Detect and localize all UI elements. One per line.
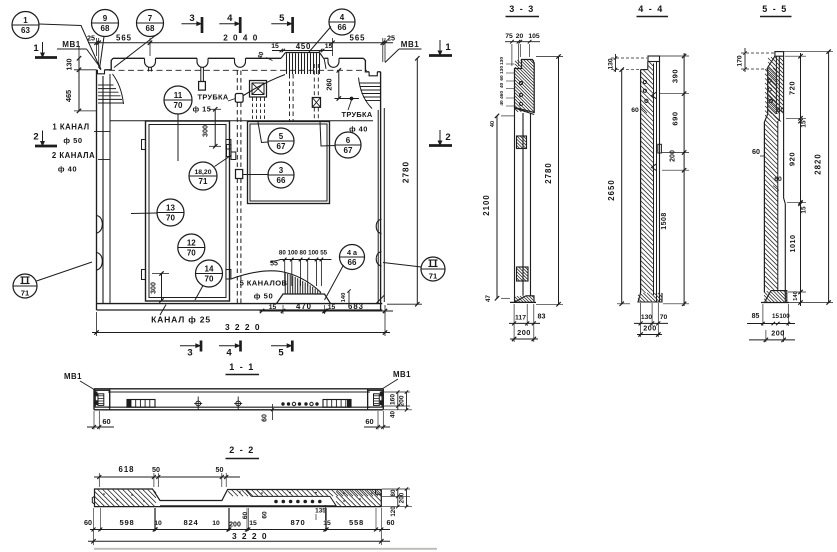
svg-text:2780: 2780 [402, 161, 411, 183]
svg-text:50: 50 [216, 465, 224, 474]
svg-text:3 - 3: 3 - 3 [509, 4, 535, 14]
svg-text:200: 200 [643, 324, 657, 333]
svg-text:ф 40: ф 40 [58, 165, 77, 174]
svg-text:200: 200 [229, 522, 241, 529]
svg-text:200: 200 [771, 329, 785, 338]
svg-text:300: 300 [151, 282, 158, 294]
svg-text:117: 117 [515, 315, 526, 322]
svg-text:3: 3 [189, 13, 194, 24]
svg-text:5: 5 [278, 348, 284, 359]
svg-text:60: 60 [242, 512, 249, 520]
svg-text:85: 85 [752, 313, 760, 320]
svg-text:558: 558 [349, 518, 364, 527]
svg-text:390: 390 [671, 69, 680, 83]
svg-text:1 КАНАЛ: 1 КАНАЛ [52, 123, 89, 132]
svg-text:3: 3 [187, 348, 192, 359]
svg-text:200: 200 [399, 492, 406, 503]
svg-text:1: 1 [23, 16, 28, 25]
svg-text:598: 598 [119, 518, 134, 527]
svg-text:70: 70 [174, 101, 183, 110]
svg-text:2 КАНАЛА: 2 КАНАЛА [52, 151, 95, 160]
svg-text:4: 4 [227, 13, 233, 24]
svg-text:40: 40 [499, 100, 505, 106]
svg-text:2650: 2650 [607, 179, 616, 200]
svg-text:70: 70 [660, 314, 668, 321]
svg-text:460: 460 [499, 91, 505, 99]
svg-text:1 - 1: 1 - 1 [229, 362, 255, 372]
svg-text:470: 470 [296, 302, 312, 311]
svg-text:12: 12 [187, 238, 196, 247]
svg-text:71: 71 [429, 271, 438, 280]
svg-text:МВ1: МВ1 [62, 40, 80, 49]
svg-text:450: 450 [296, 42, 311, 51]
svg-text:60: 60 [631, 107, 639, 114]
svg-text:1010: 1010 [788, 235, 797, 253]
svg-text:1: 1 [445, 42, 451, 53]
svg-text:60: 60 [365, 417, 373, 426]
svg-text:60: 60 [777, 107, 785, 114]
svg-text:2: 2 [445, 132, 450, 143]
svg-text:11: 11 [174, 91, 183, 100]
svg-text:14: 14 [205, 264, 214, 273]
svg-text:2100: 2100 [482, 194, 491, 215]
svg-text:870: 870 [290, 518, 305, 527]
svg-text:60: 60 [752, 147, 760, 156]
svg-text:40: 40 [490, 121, 496, 127]
svg-text:15: 15 [323, 520, 331, 527]
svg-text:5: 5 [279, 13, 285, 24]
svg-text:МВ1: МВ1 [64, 372, 82, 381]
svg-text:75: 75 [505, 33, 513, 40]
svg-text:690: 690 [671, 111, 680, 125]
svg-text:2 0 4 0: 2 0 4 0 [223, 33, 259, 42]
svg-text:824: 824 [183, 518, 198, 527]
svg-text:135: 135 [315, 508, 326, 515]
svg-text:40: 40 [499, 83, 505, 89]
svg-text:3 2 2 0: 3 2 2 0 [232, 531, 268, 541]
svg-text:66: 66 [277, 176, 286, 185]
svg-text:9: 9 [103, 14, 108, 23]
svg-text:140: 140 [793, 291, 799, 301]
svg-text:80: 80 [390, 489, 397, 496]
svg-text:60: 60 [387, 518, 395, 527]
svg-text:15: 15 [271, 43, 279, 50]
svg-text:5 - 5: 5 - 5 [762, 4, 788, 14]
svg-text:6: 6 [346, 136, 351, 145]
svg-text:60: 60 [102, 417, 110, 426]
svg-text:130: 130 [499, 66, 505, 74]
svg-text:683: 683 [348, 302, 364, 311]
svg-text:4: 4 [226, 348, 232, 359]
svg-text:1: 1 [33, 43, 39, 54]
svg-text:1508: 1508 [661, 212, 668, 230]
svg-text:67: 67 [277, 142, 286, 151]
svg-text:565: 565 [116, 33, 132, 42]
svg-text:68: 68 [101, 24, 110, 33]
svg-text:15: 15 [801, 206, 808, 214]
svg-text:3 2 2 0: 3 2 2 0 [225, 322, 261, 332]
svg-text:71: 71 [199, 177, 208, 186]
svg-text:2780: 2780 [544, 162, 553, 183]
svg-text:60: 60 [262, 511, 269, 519]
svg-text:15: 15 [249, 520, 257, 527]
svg-text:40: 40 [390, 411, 397, 418]
svg-text:465: 465 [64, 90, 73, 102]
svg-text:60: 60 [84, 518, 92, 527]
svg-text:2: 2 [33, 132, 38, 143]
svg-text:130: 130 [608, 58, 615, 70]
svg-text:15: 15 [325, 43, 333, 50]
svg-text:60: 60 [774, 176, 782, 183]
svg-text:200: 200 [517, 328, 531, 337]
svg-text:ТРУБКА: ТРУБКА [198, 93, 229, 102]
svg-text:25: 25 [387, 33, 395, 42]
svg-text:МВ1: МВ1 [401, 40, 419, 49]
svg-text:18,20: 18,20 [194, 169, 211, 176]
svg-text:105: 105 [528, 33, 540, 40]
svg-text:565: 565 [349, 33, 365, 42]
svg-text:4 a: 4 a [347, 248, 358, 257]
svg-text:170: 170 [737, 55, 744, 67]
svg-text:47: 47 [485, 295, 492, 302]
svg-text:83: 83 [538, 312, 546, 321]
svg-text:10: 10 [212, 520, 220, 527]
svg-text:15: 15 [269, 304, 277, 311]
svg-text:200: 200 [399, 395, 406, 406]
svg-text:50: 50 [152, 465, 160, 474]
svg-text:160: 160 [390, 394, 397, 405]
svg-text:67: 67 [344, 146, 353, 155]
svg-text:920: 920 [788, 152, 797, 166]
svg-text:4: 4 [340, 13, 345, 22]
svg-text:3: 3 [279, 166, 284, 175]
svg-text:7: 7 [148, 14, 153, 23]
svg-text:260: 260 [325, 78, 334, 90]
svg-text:15: 15 [328, 304, 336, 311]
svg-text:5 КАНАЛОВ: 5 КАНАЛОВ [240, 278, 288, 287]
svg-text:130: 130 [499, 57, 505, 65]
svg-text:300: 300 [201, 125, 210, 137]
svg-text:ф 50: ф 50 [254, 292, 274, 301]
svg-text:68: 68 [146, 24, 155, 33]
svg-text:2 - 2: 2 - 2 [229, 445, 255, 455]
svg-text:4 - 4: 4 - 4 [638, 4, 664, 14]
svg-text:ф 50: ф 50 [63, 136, 82, 145]
svg-text:МВ1: МВ1 [393, 370, 411, 379]
svg-text:720: 720 [788, 81, 797, 95]
svg-text:70: 70 [187, 249, 196, 258]
svg-text:120: 120 [390, 506, 397, 517]
svg-text:70: 70 [205, 275, 214, 284]
svg-text:66: 66 [338, 23, 347, 32]
svg-text:63: 63 [21, 26, 30, 35]
svg-text:13: 13 [166, 203, 175, 212]
svg-text:2820: 2820 [814, 153, 823, 174]
svg-text:ф 15: ф 15 [193, 105, 212, 114]
svg-text:130: 130 [65, 59, 74, 71]
svg-text:5: 5 [279, 132, 284, 141]
svg-text:66: 66 [348, 258, 357, 267]
svg-text:618: 618 [118, 465, 134, 474]
svg-text:КАНАЛ ф 25: КАНАЛ ф 25 [151, 315, 211, 325]
svg-text:60: 60 [499, 75, 505, 81]
svg-text:70: 70 [166, 214, 175, 223]
svg-text:200: 200 [670, 150, 677, 162]
svg-text:140: 140 [341, 293, 347, 303]
svg-text:130: 130 [641, 314, 653, 321]
svg-text:ТРУБКА: ТРУБКА [342, 110, 373, 119]
svg-text:60: 60 [262, 414, 269, 422]
svg-text:15: 15 [801, 120, 808, 128]
svg-text:71: 71 [21, 288, 30, 297]
svg-text:80 100 80 100 55: 80 100 80 100 55 [279, 249, 328, 256]
svg-text:20: 20 [516, 33, 524, 40]
